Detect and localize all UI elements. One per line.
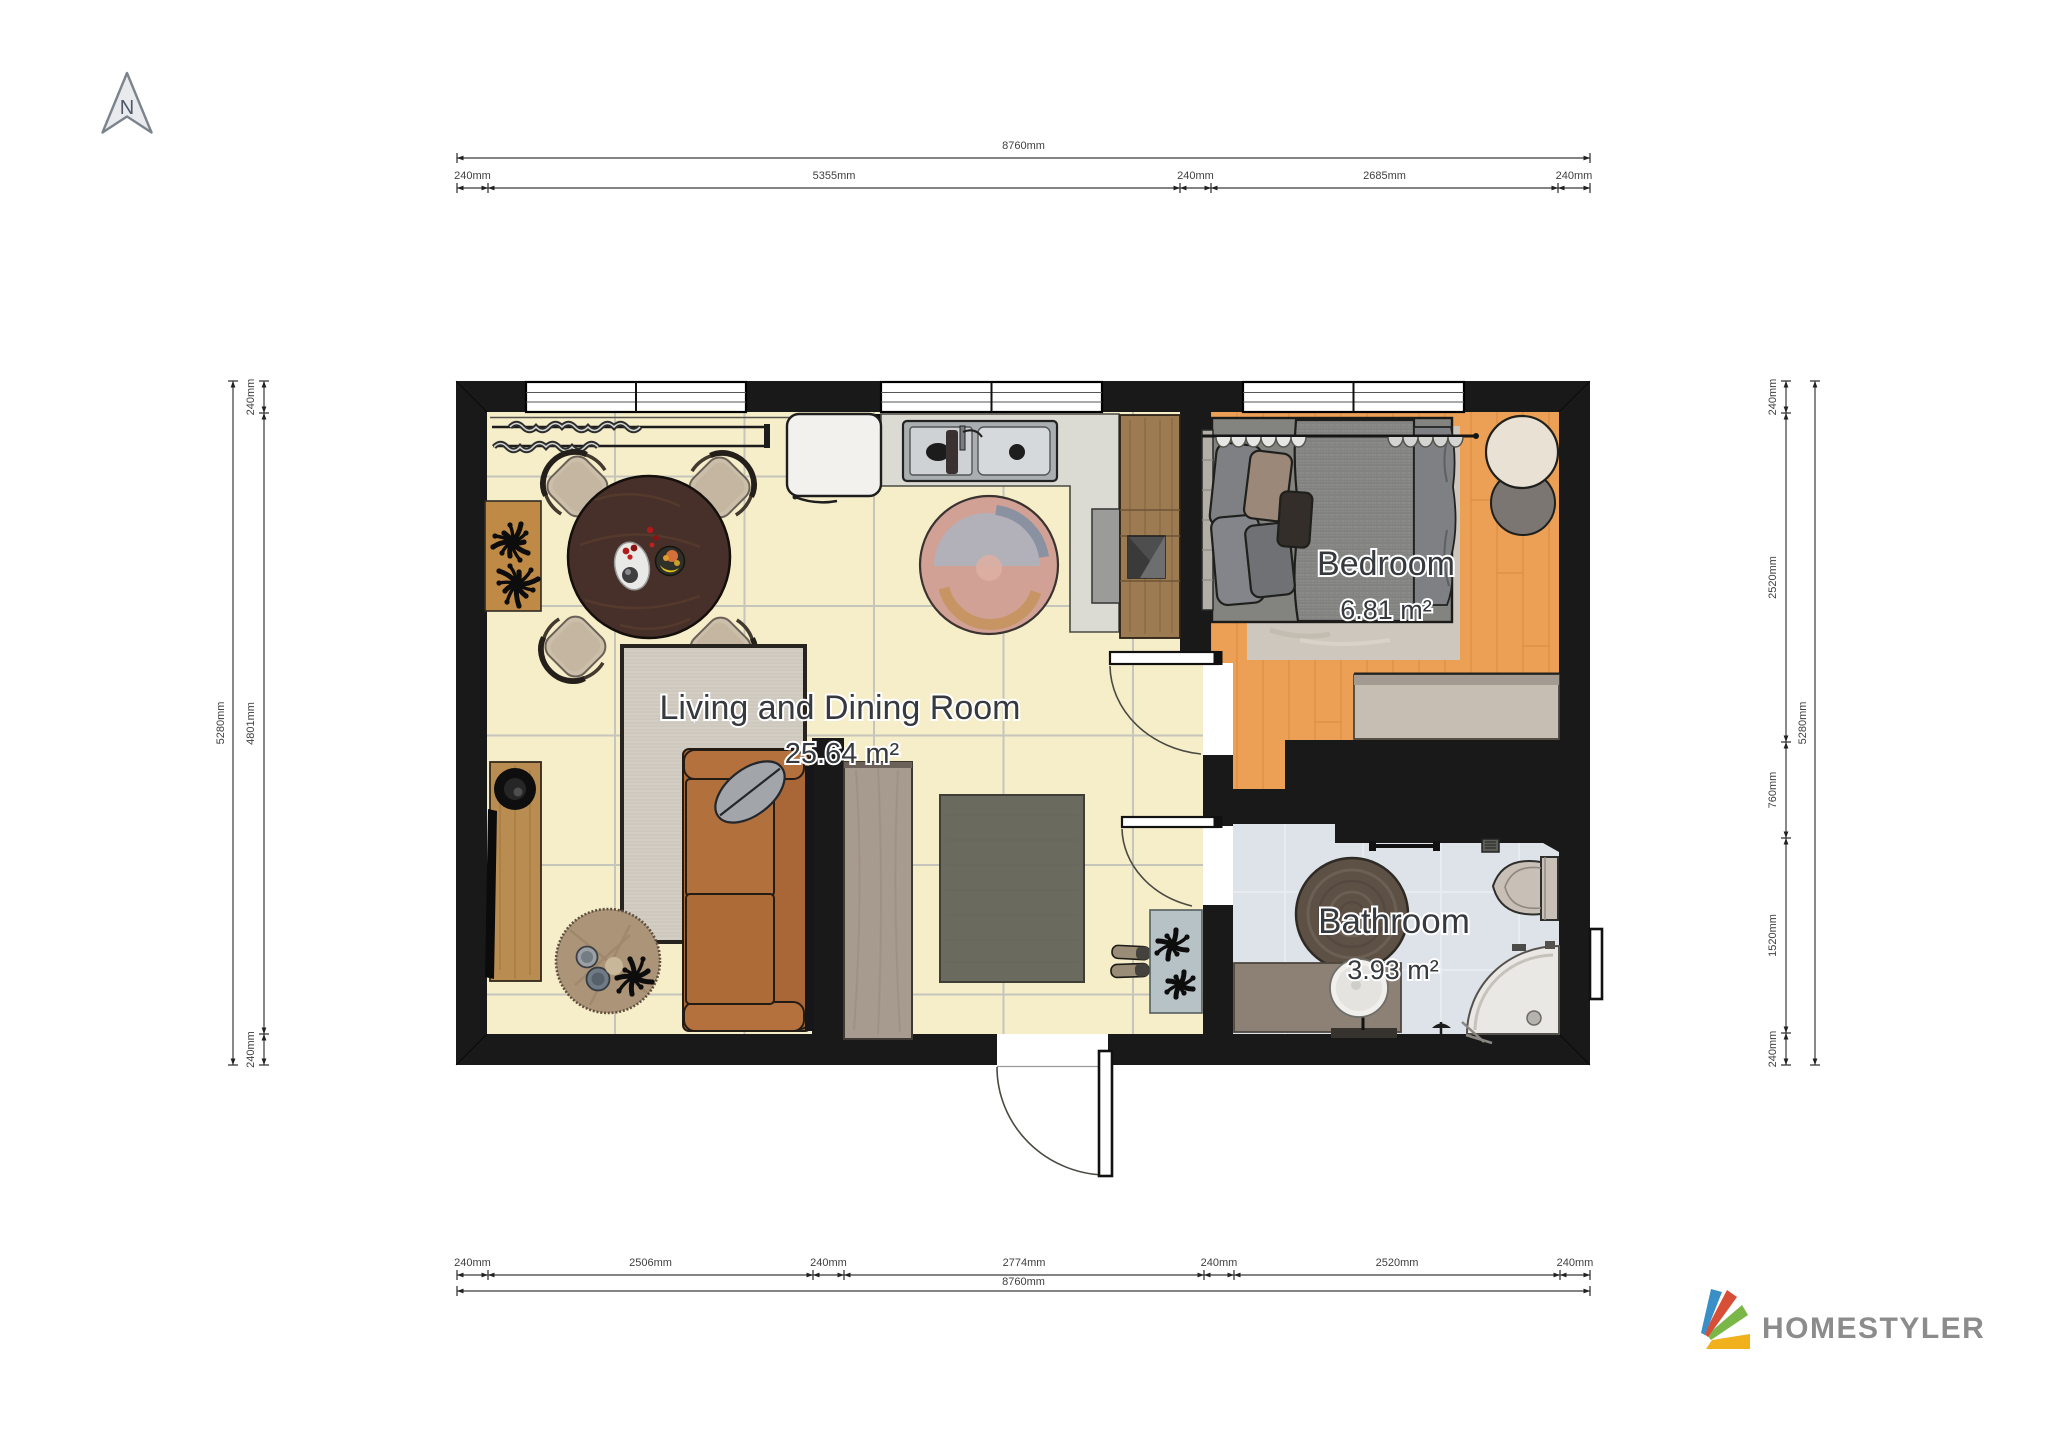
svg-text:240mm: 240mm bbox=[454, 170, 491, 182]
svg-text:8760mm: 8760mm bbox=[1002, 1276, 1045, 1288]
svg-text:2520mm: 2520mm bbox=[1376, 1257, 1419, 1269]
svg-text:3.93 m²: 3.93 m² bbox=[1347, 955, 1439, 985]
svg-text:2506mm: 2506mm bbox=[629, 1257, 672, 1269]
svg-text:Living and Dining Room: Living and Dining Room bbox=[660, 689, 1021, 727]
svg-text:240mm: 240mm bbox=[1201, 1257, 1238, 1269]
svg-text:4801mm: 4801mm bbox=[245, 702, 257, 745]
svg-text:240mm: 240mm bbox=[454, 1257, 491, 1269]
svg-text:Bathroom: Bathroom bbox=[1318, 902, 1470, 941]
svg-text:HOMESTYLER: HOMESTYLER bbox=[1762, 1312, 1985, 1345]
svg-text:2685mm: 2685mm bbox=[1363, 170, 1406, 182]
svg-text:N: N bbox=[120, 97, 134, 119]
svg-text:240mm: 240mm bbox=[1557, 1257, 1594, 1269]
svg-text:5355mm: 5355mm bbox=[813, 170, 856, 182]
svg-text:240mm: 240mm bbox=[1767, 1031, 1779, 1068]
svg-text:240mm: 240mm bbox=[1556, 170, 1593, 182]
svg-text:2520mm: 2520mm bbox=[1767, 556, 1779, 599]
svg-text:2774mm: 2774mm bbox=[1003, 1257, 1046, 1269]
svg-text:240mm: 240mm bbox=[245, 1031, 257, 1068]
svg-text:240mm: 240mm bbox=[1177, 170, 1214, 182]
svg-text:25.64 m²: 25.64 m² bbox=[785, 738, 900, 770]
svg-text:1520mm: 1520mm bbox=[1767, 914, 1779, 957]
svg-text:5280mm: 5280mm bbox=[1797, 702, 1809, 745]
svg-text:8760mm: 8760mm bbox=[1002, 140, 1045, 152]
svg-text:6.81 m²: 6.81 m² bbox=[1340, 595, 1432, 625]
svg-text:5280mm: 5280mm bbox=[215, 702, 227, 745]
svg-text:240mm: 240mm bbox=[1767, 379, 1779, 416]
svg-text:Bedroom: Bedroom bbox=[1317, 545, 1455, 583]
svg-text:760mm: 760mm bbox=[1767, 772, 1779, 809]
svg-text:240mm: 240mm bbox=[245, 379, 257, 416]
svg-text:240mm: 240mm bbox=[810, 1257, 847, 1269]
